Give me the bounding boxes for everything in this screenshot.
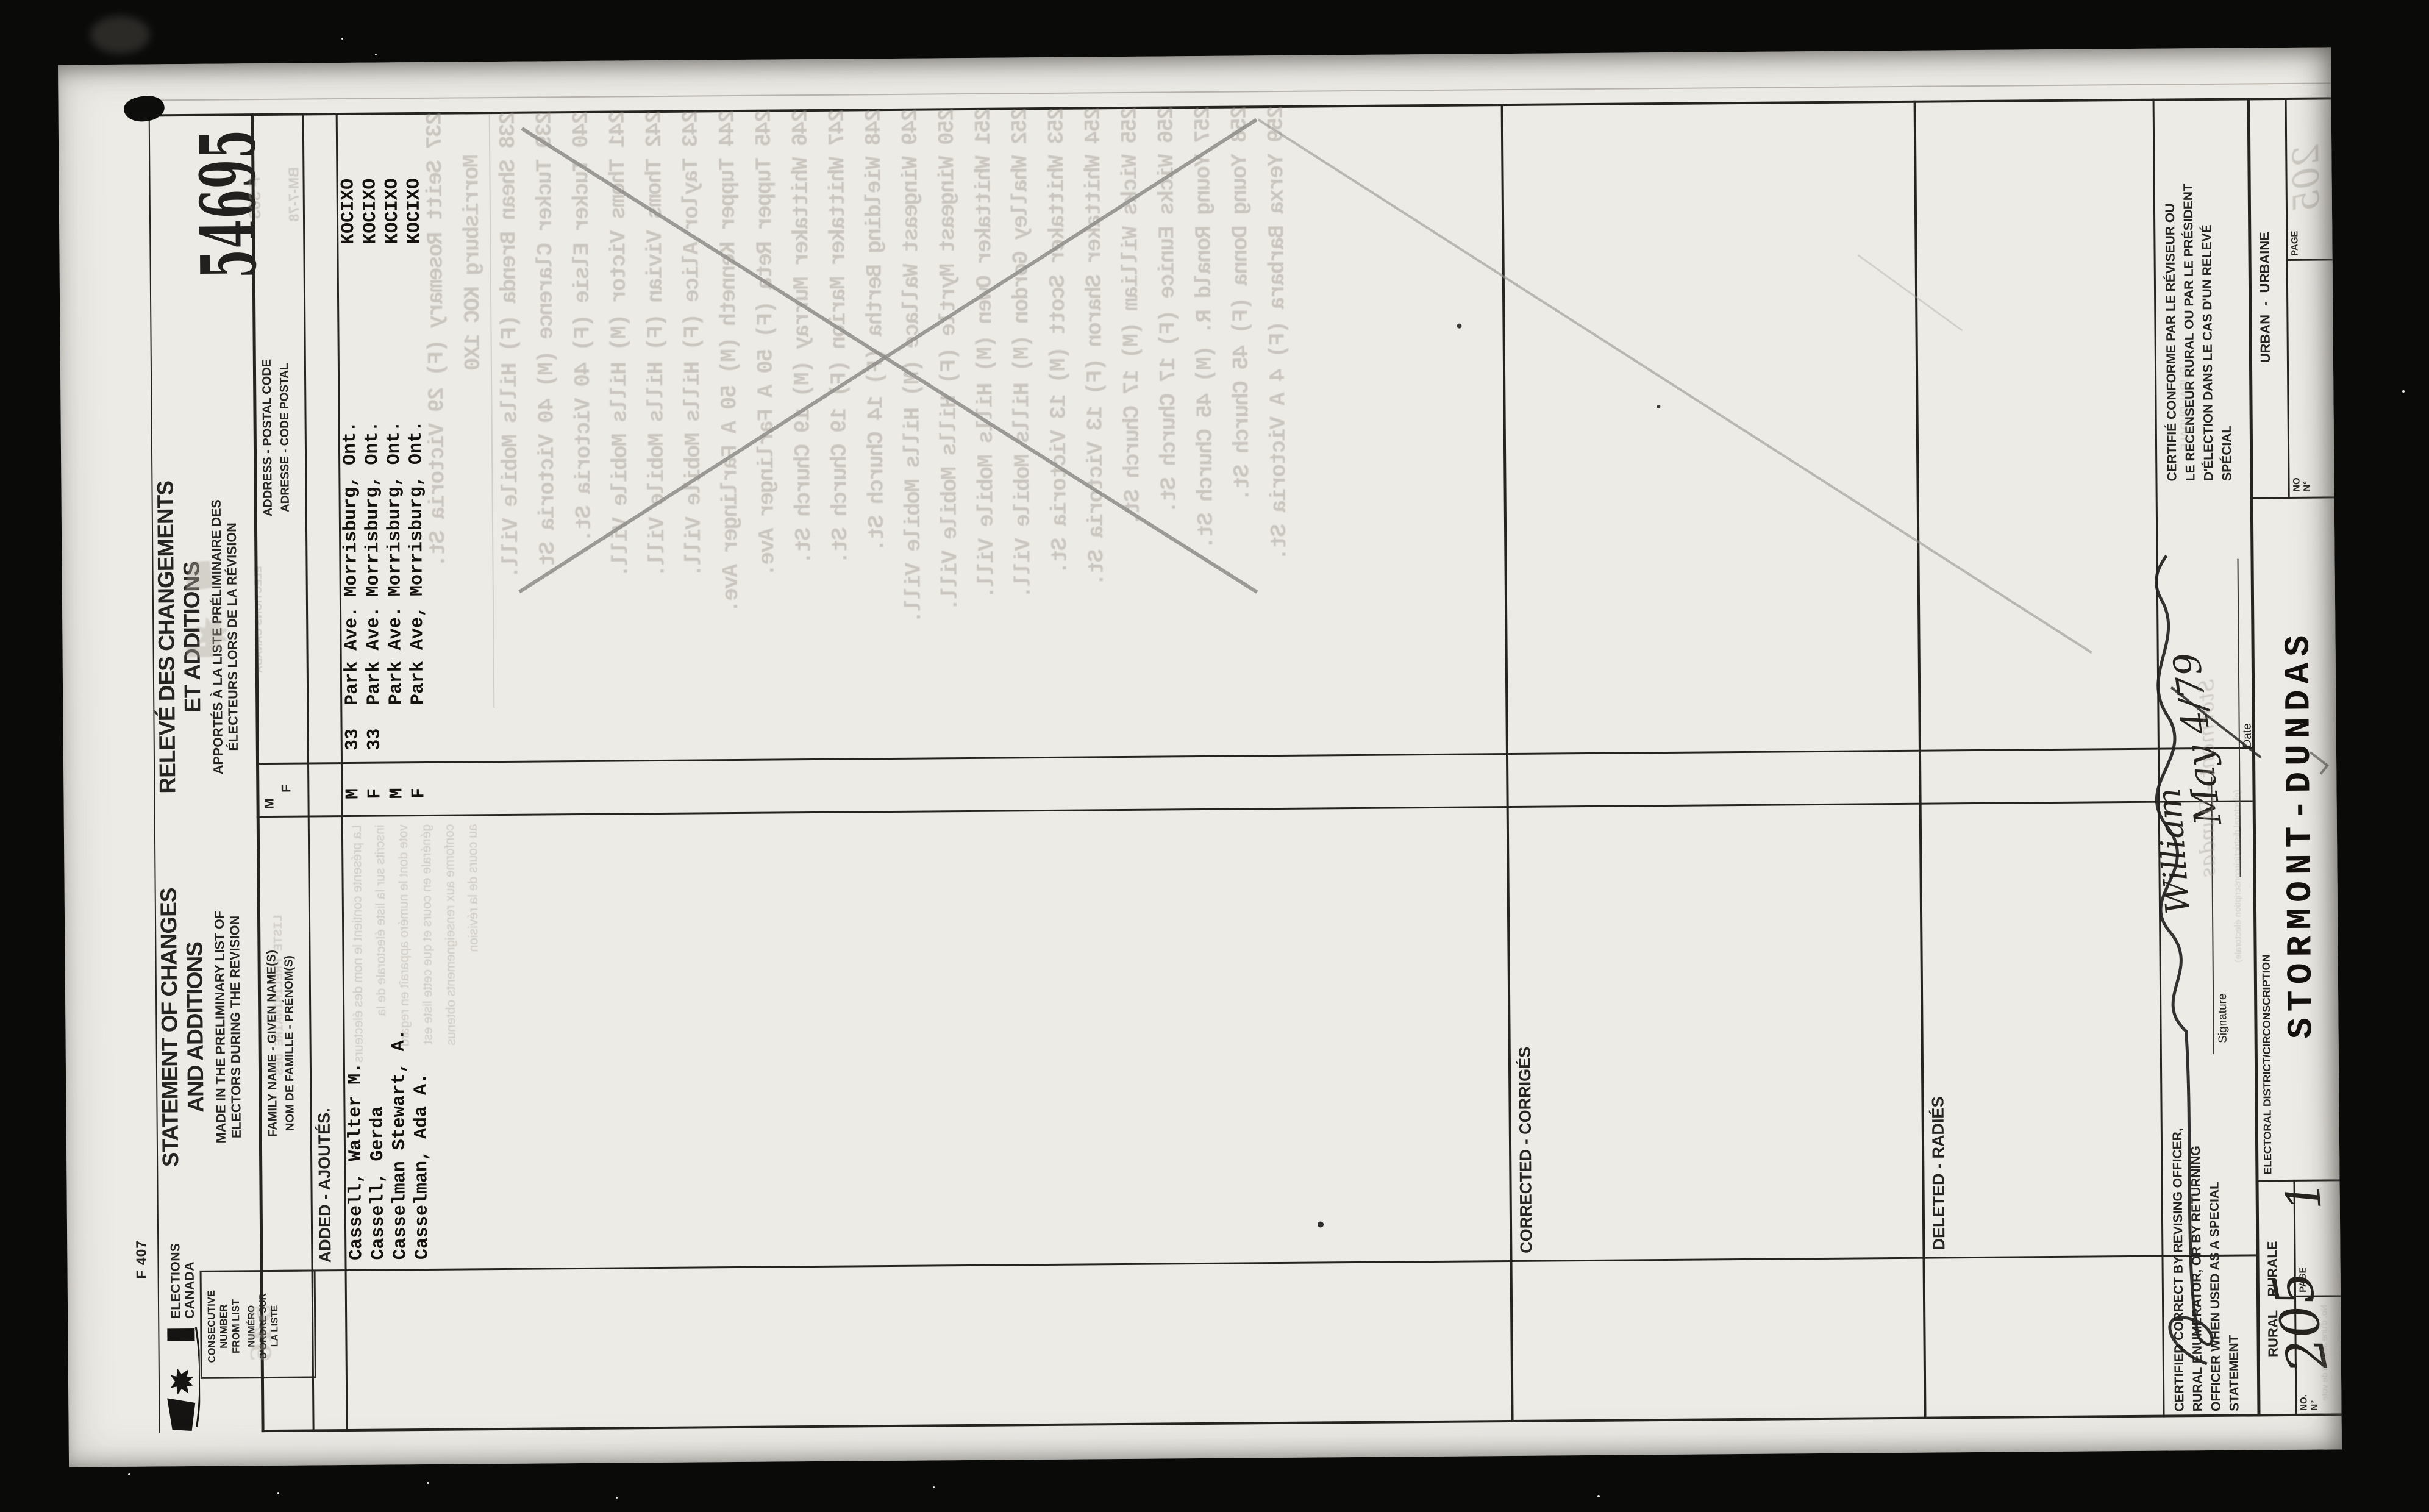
ghost-list-line: 253 Whittaker Scott (M) 13 Victoria St. [1039,107,1080,751]
ghost-urban-page-value: 205 [2285,144,2327,212]
section-label-added: ADDED - AJOUTÉS. [315,1108,335,1263]
ghost-list-line: 245 Tupper Reta (F) 50 A Farlinger Ave. [746,109,788,753]
row-sex: F [408,788,429,799]
ghost-rural-label: RURAL RURALE [2178,366,2192,451]
dust-speck [933,1486,935,1488]
no-label-fr: N° [2309,1394,2319,1411]
agency-line2: CANADA [182,1243,197,1319]
consec-line: FROM LIST [230,1275,243,1377]
row-name: Casselman, Ada A. [411,1073,433,1260]
dust-speck [277,1492,279,1494]
row-street: Park Ave. [385,606,407,705]
ghost-list-line: 254 Whittaker Sharon (F) 13 Victoria St. [1075,107,1117,751]
ghost-list-line: 244 Tupper Kenneth (M) 50 A Farlinger Av… [710,110,751,754]
agency-line1: ELECTIONS [168,1243,183,1319]
certification-english: CERTIFIED CORRECT BY REVISING OFFICER, R… [2168,1052,2244,1412]
dust-speck [1597,1495,1600,1497]
row-postal: KOCIXO [382,178,404,244]
dust-speck [341,38,343,40]
ghost-list-line: 241 Thoms Victor (M) Hills Mobile Vill. [600,110,641,754]
ghost-list-line: 249 Wingeast Wallace (M) Hills Mobile Vi… [893,108,934,752]
ghost-list-line: 247 Whittaker Marion (F) 19 Church St. [819,109,861,752]
row-sex: M [387,788,407,799]
cert-en-line: STATEMENT [2223,1052,2244,1411]
paper-edge-line [131,82,2331,101]
ghost-list-line: 246 Whittaker Murray (M) 19 Church St. [783,109,824,753]
ghost-list-line: 252 Whalley Gordon (M) Hills Mobile Vill… [1002,107,1044,751]
document-sheet-rotated: F 407 ELECTIONS CANADA STATEMENT OF CHAN… [58,47,2342,1467]
ghost-elector-list: 237 Seitt Rosemary (F) 29 Victoria St. M… [417,105,1300,756]
form-number: F 407 [133,1240,150,1279]
row-name: Casselman Stewart, A. [388,1029,411,1260]
ghost-list-line: 259 Yerxa Barbara (F) 4 A Victoria St. [1258,105,1300,749]
row-postal: KOCIXO [360,178,382,244]
pencil-long-stroke [1258,113,2092,660]
title-fr-line1: RELEVÉ DES CHANGEMENTS [152,439,181,835]
corrected-rule [1501,104,1514,1422]
header-bottom-rule [302,113,315,1432]
consec-line: CONSECUTIVE [205,1276,218,1377]
district-label: ELECTORAL DISTRICT/CIRCONSCRIPTION [2260,954,2275,1174]
urban-label: URBAN - URBAINE [2256,98,2275,497]
dust-speck [375,54,377,55]
elections-canada-flag-logo-icon [165,1324,200,1431]
no-label-en: NO [2291,477,2302,491]
row-civic-number: 33 [343,729,363,751]
row-street: Park Ave. [341,607,363,705]
section-label-corrected: CORRECTED - CORRIGÉS [1516,1047,1536,1253]
row-name: Cassell, Gerda [367,1106,389,1260]
ghost-list-line: 243 Taylor Alice (F) Hills Mobile Vill. [673,110,715,754]
ghost-list-line: 237 Seitt Rosemary (F) 29 Victoria St. [417,112,458,756]
cert-en-line: OFFICER WHEN USED AS A SPECIAL [2205,1052,2226,1411]
dust-speck [616,1497,618,1499]
ghost-polling-label: No. d'une section de vote [2319,1305,2329,1401]
ghost-district-small: (electoral district/circonscription élec… [2231,790,2243,963]
table-left-border [262,1413,2342,1432]
ghost-family-header: LISTE PRÉLIMINAIRE DES [272,915,287,1075]
document-page: F 407 ELECTIONS CANADA STATEMENT OF CHAN… [58,47,2342,1467]
scanner-background: { "form_number": "F 407", "stamp_number"… [0,0,2429,1512]
title-en-line4: ELECTORS DURING THE REVISION [227,844,245,1210]
urban-cell-divider [2286,259,2333,261]
ink-dot [1657,405,1660,408]
cert-fr-line: SPÉCIAL [2215,79,2236,481]
section-label-deleted: DELETED - RADIÉS [1928,1096,1949,1250]
row-sex: M [343,788,363,799]
ghost-list-line: 248 Wielding Bertha (F) 14 Church St. [856,109,897,752]
row-sex: F [365,788,385,799]
urban-page-label: PAGE [2289,230,2300,256]
row-city: Morrisburg, Ont. [384,421,406,596]
address-header: ADDRESS - POSTAL CODE ADRESSE - CODE POS… [259,116,294,760]
consec-line: NUMBER [218,1276,230,1377]
ghost-flag-logo-icon [182,560,250,665]
title-english: STATEMENT OF CHANGES AND ADDITIONS MADE … [155,844,245,1210]
rural-page-value: 1 [2275,1179,2332,1213]
row-postal: KOCIXO [338,179,360,244]
agency-name: ELECTIONS CANADA [168,1243,197,1319]
signature-label: Signature [2216,993,2230,1043]
scanner-smudge [90,16,150,54]
ghost-list-line: 239 Tucker Clarence (M) 40 Victoria St. [527,111,568,755]
row-street: Park Ave. [363,606,385,705]
certification-french: CERTIFIÉ CONFORME PAR LE RÉVISEUR OU LE … [2160,79,2236,482]
ghost-text-line: au cours de la révision [462,824,488,1263]
ghost-list-line: 242 Thoms Vivian (F) Hills Mobile Vill. [637,110,678,754]
row-name: Cassell, Walter M. [345,1063,368,1260]
pencil-faint-stroke [1858,254,1963,331]
ghost-list-line: 255 Wicks William (M) 17 Church St. [1112,107,1154,751]
ghost-list-line: 251 Whittaker Owen (M) Hills Mobile Vill… [966,108,1007,752]
cert-en-line: RURAL ENUMERATOR, OR BY RETURNING [2186,1052,2208,1411]
ghost-list-line: 238 Shean Brenda (F) Hills Mobile Vill. [490,112,532,755]
rural-no-label: NO. N° [2299,1394,2319,1411]
dust-speck [2402,390,2405,393]
ink-dot [1318,1221,1324,1227]
dust-speck [128,1473,130,1475]
ink-dot [1457,324,1461,329]
title-en-line2: AND ADDITIONS [181,844,210,1210]
row-city: Morrisburg, Ont. [362,421,384,596]
ghost-stamp-digits: 546 [244,1303,278,1362]
ghost-district-handwriting: Stormont - Dundas [2194,679,2220,877]
no-label-en: NO. [2299,1394,2309,1411]
no-label-fr: N° [2302,477,2312,491]
ghost-list-line: Morrisburg KOC 1X0 [454,112,495,755]
dust-speck [427,1482,429,1484]
sex-header-m: M [262,798,277,809]
ghost-text-line: conforme aux renseignements obtenus [438,824,465,1263]
urban-no-label: NO N° [2291,477,2312,491]
title-en-line1: STATEMENT OF CHANGES [155,844,184,1210]
col-border-consecutive [260,1254,2256,1272]
district-value: STORMONT-DUNDAS [2278,505,2323,1163]
row-civic-number: 33 [365,728,385,750]
deleted-rule [1914,101,1927,1419]
ghost-list-line: 257 Young Ronald R. (M) 45 Church St. [1185,106,1227,750]
col-border-name-sex [257,800,2253,818]
sex-header-f: F [279,785,294,793]
ghost-list-line: 250 Wingeast Myrtle (F) Hills Mobile Vil… [929,108,971,752]
cert-en-line: CERTIFIED CORRECT BY REVISING OFFICER, [2168,1052,2189,1411]
row-city: Morrisburg, Ont. [340,421,362,597]
ghost-list-line: 256 Wicks Eunice (F) 17 Church St. [1149,106,1190,750]
ghost-list-line: 258 Young Donna (F) 45 Church St. [1222,105,1263,749]
ghost-list-line: 240 Tucker Elsie (F) 40 Victoria St. [563,111,605,755]
